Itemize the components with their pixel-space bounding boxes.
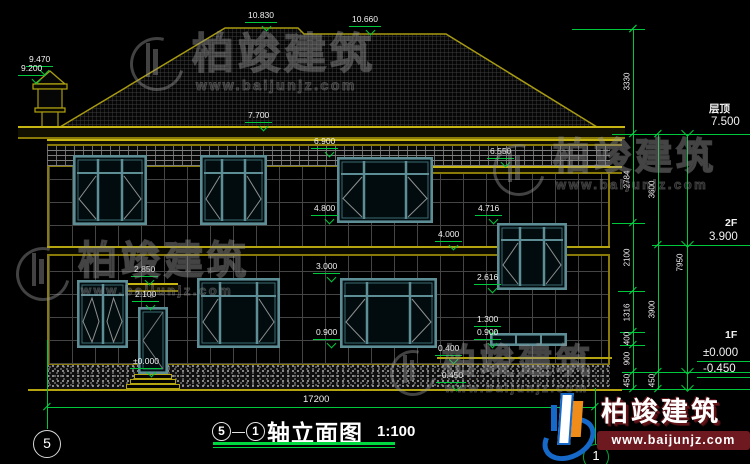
footer-brand-url: www.baijunjz.com (597, 431, 750, 450)
dim-3900: 3900 (648, 292, 657, 328)
window-2f-wing (497, 223, 567, 290)
dim-2100: 2100 (623, 240, 632, 276)
title-underline-thin (213, 447, 395, 448)
axis-bubble-5: 5 (33, 430, 61, 458)
title-axis-start: 5 (212, 422, 231, 441)
dim-3330: 3330 (623, 64, 632, 100)
elev-eave: 7.700 (245, 111, 272, 130)
level-line-10830 (572, 29, 645, 30)
footer-logo-icon (543, 393, 597, 453)
label-2f-name: 2F (725, 217, 737, 229)
dim-3600: 3600 (648, 172, 657, 208)
dim-450a: 450 (623, 363, 632, 399)
dim-chain-line-c (687, 134, 688, 389)
elev-floor-zero: ±0.000 (130, 357, 162, 376)
elevation-drawing: 17200 5 1 10.830 10.660 9.470 9.200 7.70… (0, 0, 750, 464)
label-1f-zero: ±0.000 (703, 347, 738, 359)
title-underline-thick (213, 442, 395, 445)
elev-strip-sill: 0.900 (474, 328, 501, 347)
dim-7950: 7950 (676, 245, 685, 281)
elev-ridge-left: 10.830 (245, 11, 277, 30)
label-roof-name: 层顶 (709, 101, 730, 116)
window-2f-left (73, 155, 147, 225)
terrace-line (437, 357, 612, 359)
dim-2784: 2784 (623, 162, 632, 198)
elev-ground: -0.450 (436, 371, 466, 390)
watermark-logo-bars (32, 253, 44, 286)
dim-450b: 450 (648, 363, 657, 399)
title-separator: — (232, 424, 245, 439)
total-width-dim-text: 17200 (303, 394, 329, 405)
window-2f-mid (200, 155, 267, 225)
roof-face (60, 28, 597, 127)
dim-chain-line-b (658, 134, 659, 389)
elev-belt: 4.000 (435, 230, 462, 249)
level-underline-zero (697, 361, 750, 362)
elev-wing-win-top: 4.716 (475, 204, 502, 223)
elev-canopy: 2.850 (131, 265, 158, 284)
dim-chain-line-a (633, 29, 634, 389)
footer-brand-name: 柏竣建筑 (601, 399, 721, 426)
window-2f-right (337, 157, 433, 223)
label-2f-elev: 3.900 (709, 231, 738, 243)
label-1f-name: 1F (725, 329, 737, 341)
level-line-4716 (612, 223, 645, 224)
window-1f-mid (197, 278, 280, 348)
label-1f-ground: -0.450 (703, 363, 736, 375)
elev-door-head: 2.100 (132, 290, 159, 309)
grid-line-5 (47, 340, 48, 429)
elev-chimney-cap: 9.200 (18, 64, 45, 83)
wing-eave-fascia (420, 166, 622, 174)
elev-wing-eave: 6.550 (487, 147, 514, 166)
door-step-3 (126, 384, 180, 389)
elev-wing-win-sill: 2.616 (474, 273, 501, 292)
elev-f2-win-top: 6.900 (311, 137, 338, 156)
elev-terrace: 0.400 (435, 344, 462, 363)
ground-line (28, 389, 622, 391)
elev-f1-win-sill: 0.900 (313, 328, 340, 347)
elev-f1-win-top: 3.000 (313, 262, 340, 281)
elev-f2-win-sill: 4.800 (311, 204, 338, 223)
window-1f-strip (490, 333, 567, 346)
footer-logo-bar-blue (551, 405, 557, 431)
title-scale: 1:100 (377, 423, 415, 440)
title-axis-end: 1 (246, 422, 265, 441)
total-width-dim-line (47, 407, 595, 408)
elev-ridge-right: 10.660 (349, 15, 381, 34)
label-roof-elev: 7.500 (711, 116, 740, 128)
window-1f-left (77, 280, 128, 348)
level-underline-minus (697, 377, 750, 378)
window-1f-right (340, 278, 437, 348)
level-line-3900 (652, 245, 750, 246)
